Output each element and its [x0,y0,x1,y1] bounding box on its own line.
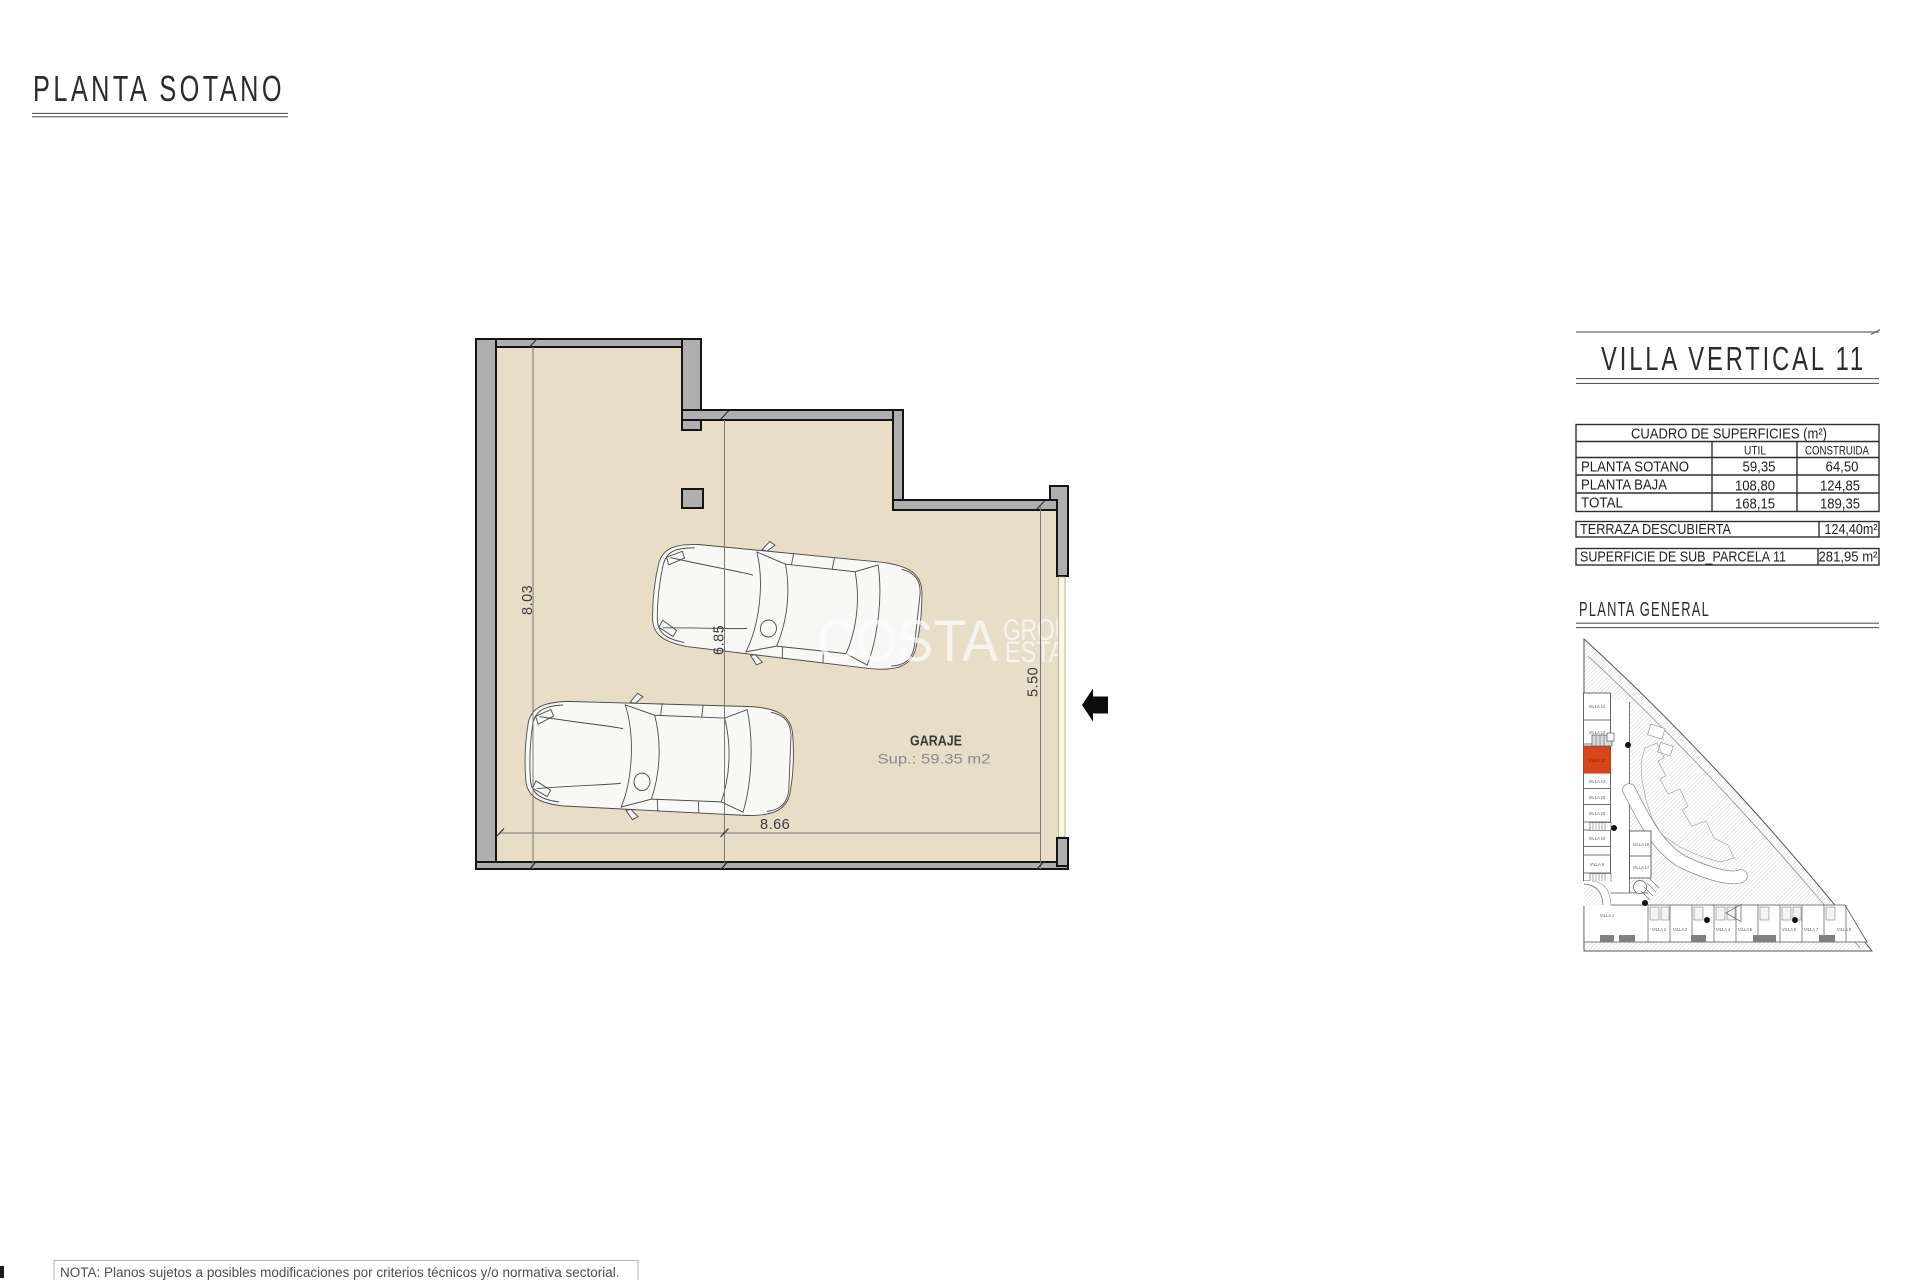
svg-text:64,50: 64,50 [1826,460,1859,476]
svg-text:189,35: 189,35 [1820,497,1860,513]
svg-text:281,95 m²: 281,95 m² [1819,550,1878,566]
svg-text:VILLA 7: VILLA 7 [1804,927,1819,932]
svg-text:PLANTA SOTANO: PLANTA SOTANO [33,68,285,109]
svg-text:TERRAZA DESCUBIERTA: TERRAZA DESCUBIERTA [1580,522,1731,538]
svg-text:NOTA: Planos sujetos a posible: NOTA: Planos sujetos a posibles modifica… [60,1265,620,1280]
svg-text:8.66: 8.66 [760,817,790,833]
svg-text:GARAJE: GARAJE [910,734,962,750]
svg-text:PLANTA SOTANO: PLANTA SOTANO [1581,460,1689,476]
svg-text:59,35: 59,35 [1743,460,1776,476]
svg-text:VILLA 9: VILLA 9 [1590,862,1605,867]
svg-text:5.50: 5.50 [1026,667,1042,697]
svg-text:108,80: 108,80 [1735,479,1775,495]
svg-text:CONSTRUIDA: CONSTRUIDA [1805,444,1869,458]
svg-text:PLANTA BAJA: PLANTA BAJA [1581,478,1667,494]
svg-text:VILLA 6: VILLA 6 [1782,927,1797,932]
svg-text:Sup.: 59.35 m2: Sup.: 59.35 m2 [878,751,991,767]
svg-text:VILLA 1: VILLA 1 [1600,913,1615,918]
svg-text:COSTA: COSTA [817,609,998,674]
svg-text:VILLA 11: VILLA 11 [1589,758,1606,763]
svg-text:VILLA 15: VILLA 15 [1589,795,1606,800]
svg-text:VILLA 10: VILLA 10 [1589,836,1606,841]
svg-text:VILLA 18: VILLA 18 [1633,842,1650,847]
svg-text:CUADRO DE SUPERFICIES (m²): CUADRO DE SUPERFICIES (m²) [1631,427,1827,443]
svg-text:VILLA 16: VILLA 16 [1589,811,1606,816]
svg-text:VILLA 8: VILLA 8 [1837,927,1852,932]
svg-text:VILLA VERTICAL 11: VILLA VERTICAL 11 [1601,340,1866,377]
svg-text:8.03: 8.03 [520,585,536,615]
svg-text:VILLA 3: VILLA 3 [1673,927,1688,932]
svg-text:VILLA 4: VILLA 4 [1716,927,1731,932]
svg-text:124,40m²: 124,40m² [1825,522,1878,538]
svg-text:124,85: 124,85 [1820,479,1860,495]
svg-text:VILLA 12: VILLA 12 [1589,730,1606,735]
svg-text:VILLA 5: VILLA 5 [1738,927,1753,932]
svg-text:VILLA 17: VILLA 17 [1633,865,1650,870]
svg-text:SUPERFICIE DE SUB_PARCELA 11: SUPERFICIE DE SUB_PARCELA 11 [1580,550,1786,566]
svg-text:6.85: 6.85 [712,625,728,655]
svg-text:168,15: 168,15 [1735,497,1775,513]
svg-text:UTIL: UTIL [1744,444,1766,458]
svg-text:VILLA 2: VILLA 2 [1652,927,1667,932]
svg-text:PLANTA GENERAL: PLANTA GENERAL [1579,598,1710,621]
svg-text:TOTAL: TOTAL [1581,496,1623,512]
svg-text:VILLA 13: VILLA 13 [1589,779,1606,784]
svg-text:VILLA 14: VILLA 14 [1589,704,1606,709]
